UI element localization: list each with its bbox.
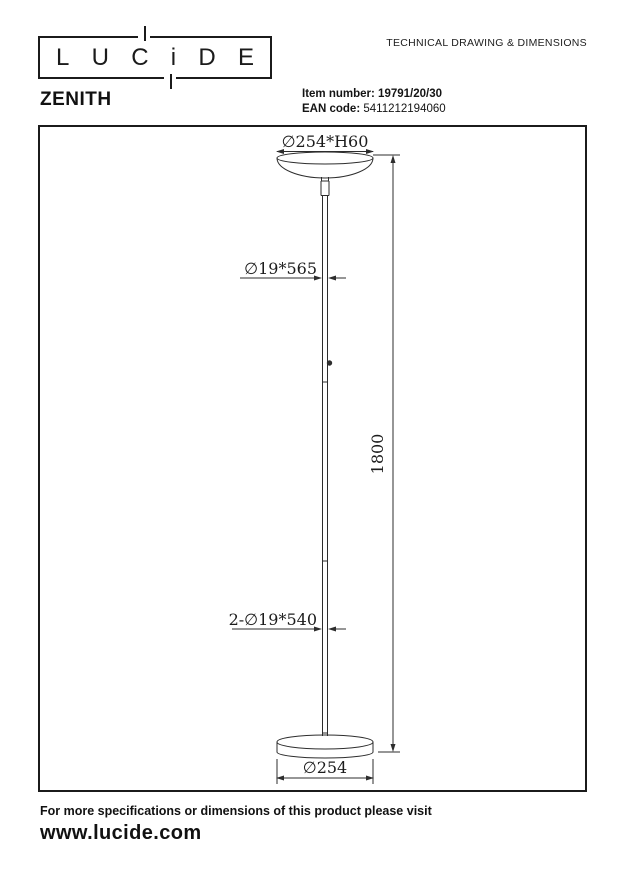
website-url: www.lucide.com	[40, 822, 202, 845]
logo-letter: E	[238, 46, 254, 70]
ean-code-value: 5411212194060	[363, 103, 445, 115]
footer-note: For more specifications or dimensions of…	[40, 804, 432, 818]
logo-letter: C	[131, 46, 148, 70]
ean-code-row: EAN code: 5411212194060	[302, 102, 446, 117]
dimension-shade: ∅254*H60	[276, 132, 374, 154]
dimension-shade-label: ∅254*H60	[282, 132, 369, 151]
product-identifiers: Item number: 19791/20/30 EAN code: 54112…	[302, 87, 446, 116]
dimension-total-height-label: 1800	[368, 434, 387, 475]
arrowhead-left-icon	[328, 627, 336, 632]
logo-i-descender-stroke	[170, 74, 172, 89]
floor-lamp-technical-drawing: ∅254*H60 ∅19*	[40, 127, 585, 790]
logo-letter: D	[198, 46, 215, 70]
arrowhead-right-icon	[314, 276, 322, 281]
arrowhead-up-icon	[391, 155, 396, 163]
logo-c-ascender-stroke	[144, 26, 146, 41]
dimension-upper-pole-label: ∅19*565	[244, 259, 317, 278]
dimension-lower-pole: 2-∅19*540	[229, 610, 346, 632]
logo-letter: L	[56, 46, 69, 70]
lamp-base	[277, 735, 373, 758]
arrowhead-down-icon	[391, 744, 396, 752]
dimension-base: ∅254	[276, 758, 374, 784]
lucide-logo: L U C i D E	[38, 36, 272, 79]
item-number-value: 19791/20/30	[378, 88, 442, 100]
dimension-lower-pole-label: 2-∅19*540	[229, 610, 317, 629]
dimension-total-height: 1800	[368, 155, 400, 752]
technical-drawing-page: L U C i D E TECHNICAL DRAWING & DIMENSIO…	[0, 0, 620, 877]
arrowhead-right-icon	[366, 149, 374, 154]
dimension-base-label: ∅254	[303, 758, 347, 777]
dimension-upper-pole: ∅19*565	[240, 259, 346, 281]
arrowhead-left-icon	[328, 276, 336, 281]
logo-letter: U	[92, 46, 109, 70]
drawing-frame: ∅254*H60 ∅19*	[38, 125, 587, 792]
logo-letter: i	[171, 46, 176, 70]
lamp-shade	[277, 152, 373, 178]
product-name: ZENITH	[40, 89, 112, 111]
item-number-row: Item number: 19791/20/30	[302, 87, 446, 102]
dimmer-switch-knob	[327, 360, 332, 365]
arrowhead-left-icon	[276, 149, 284, 154]
document-type-title: TECHNICAL DRAWING & DIMENSIONS	[386, 37, 587, 49]
ean-code-label: EAN code:	[302, 103, 360, 115]
item-number-label: Item number:	[302, 88, 375, 100]
arrowhead-right-icon	[314, 627, 322, 632]
lamp-pole	[321, 177, 332, 736]
